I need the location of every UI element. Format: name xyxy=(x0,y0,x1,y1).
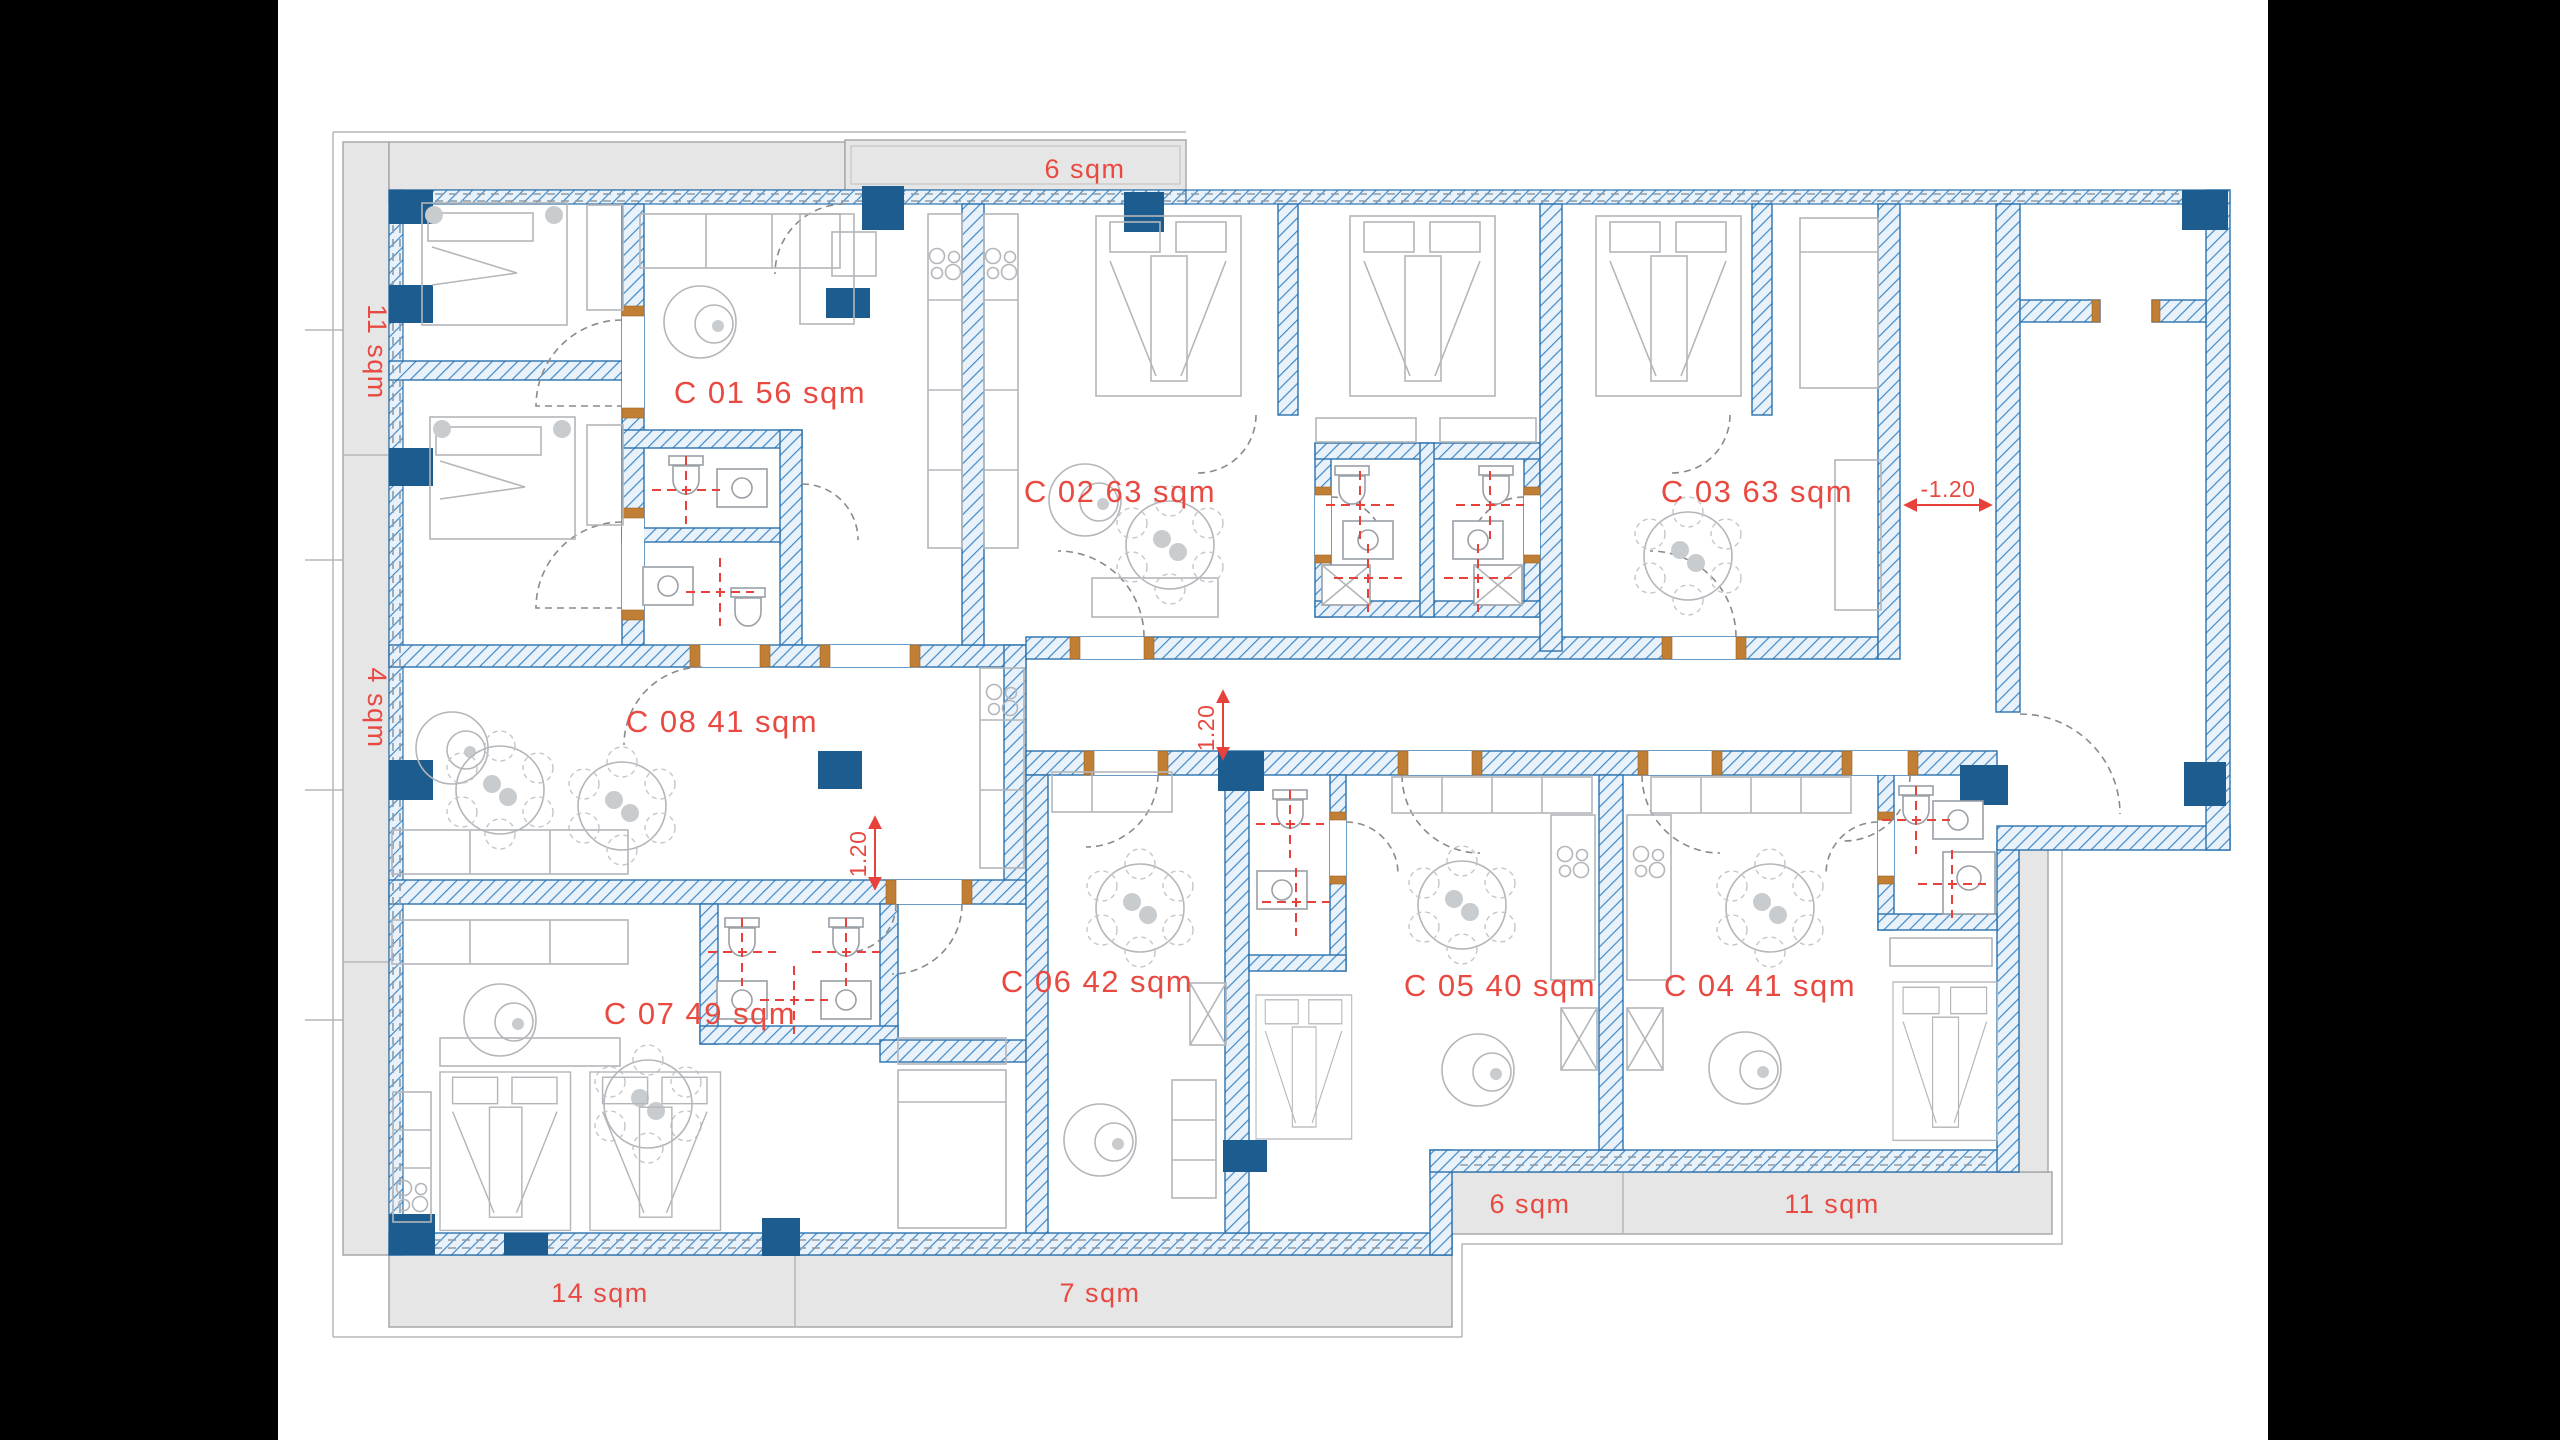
top-left-terrace xyxy=(389,142,845,190)
top-balcony xyxy=(845,140,1186,190)
unit-label-c08: C 08 41 sqm xyxy=(626,704,818,739)
balcony-label-bottom-right-small: 6 sqm xyxy=(1489,1189,1570,1219)
unit-label-c07: C 07 49 sqm xyxy=(604,996,796,1031)
balcony-label-bottom-right-large: 11 sqm xyxy=(1784,1189,1880,1219)
unit-label-c01: C 01 56 sqm xyxy=(674,375,866,410)
unit-label-c06: C 06 42 sqm xyxy=(1001,964,1193,999)
floor-plan-canvas: C 01 56 sqm C 02 63 sqm C 03 63 sqm C 04… xyxy=(0,0,2560,1440)
unit-label-c03: C 03 63 sqm xyxy=(1661,474,1853,509)
unit-label-c04: C 04 41 sqm xyxy=(1664,968,1856,1003)
balcony-label-bottom-center: 7 sqm xyxy=(1059,1278,1140,1308)
right-black-bar xyxy=(2268,0,2560,1440)
bottom-left-terrace xyxy=(389,1255,1452,1327)
screenshot-root: C 01 56 sqm C 02 63 sqm C 03 63 sqm C 04… xyxy=(0,0,2560,1440)
balcony-label-bottom-left: 14 sqm xyxy=(551,1278,649,1308)
dim-entry-level: -1.20 xyxy=(1921,476,1976,502)
unit-label-c02: C 02 63 sqm xyxy=(1024,474,1216,509)
left-black-bar xyxy=(0,0,278,1440)
unit-label-c05: C 05 40 sqm xyxy=(1404,968,1596,1003)
balcony-label-left-upper: 11 sqm xyxy=(362,304,392,400)
dim-corridor-width: 1.20 xyxy=(1193,705,1219,752)
balcony-label-top: 6 sqm xyxy=(1044,154,1125,184)
dim-passage-width: 1.20 xyxy=(845,831,871,878)
balcony-label-left-lower: 4 sqm xyxy=(362,667,392,748)
